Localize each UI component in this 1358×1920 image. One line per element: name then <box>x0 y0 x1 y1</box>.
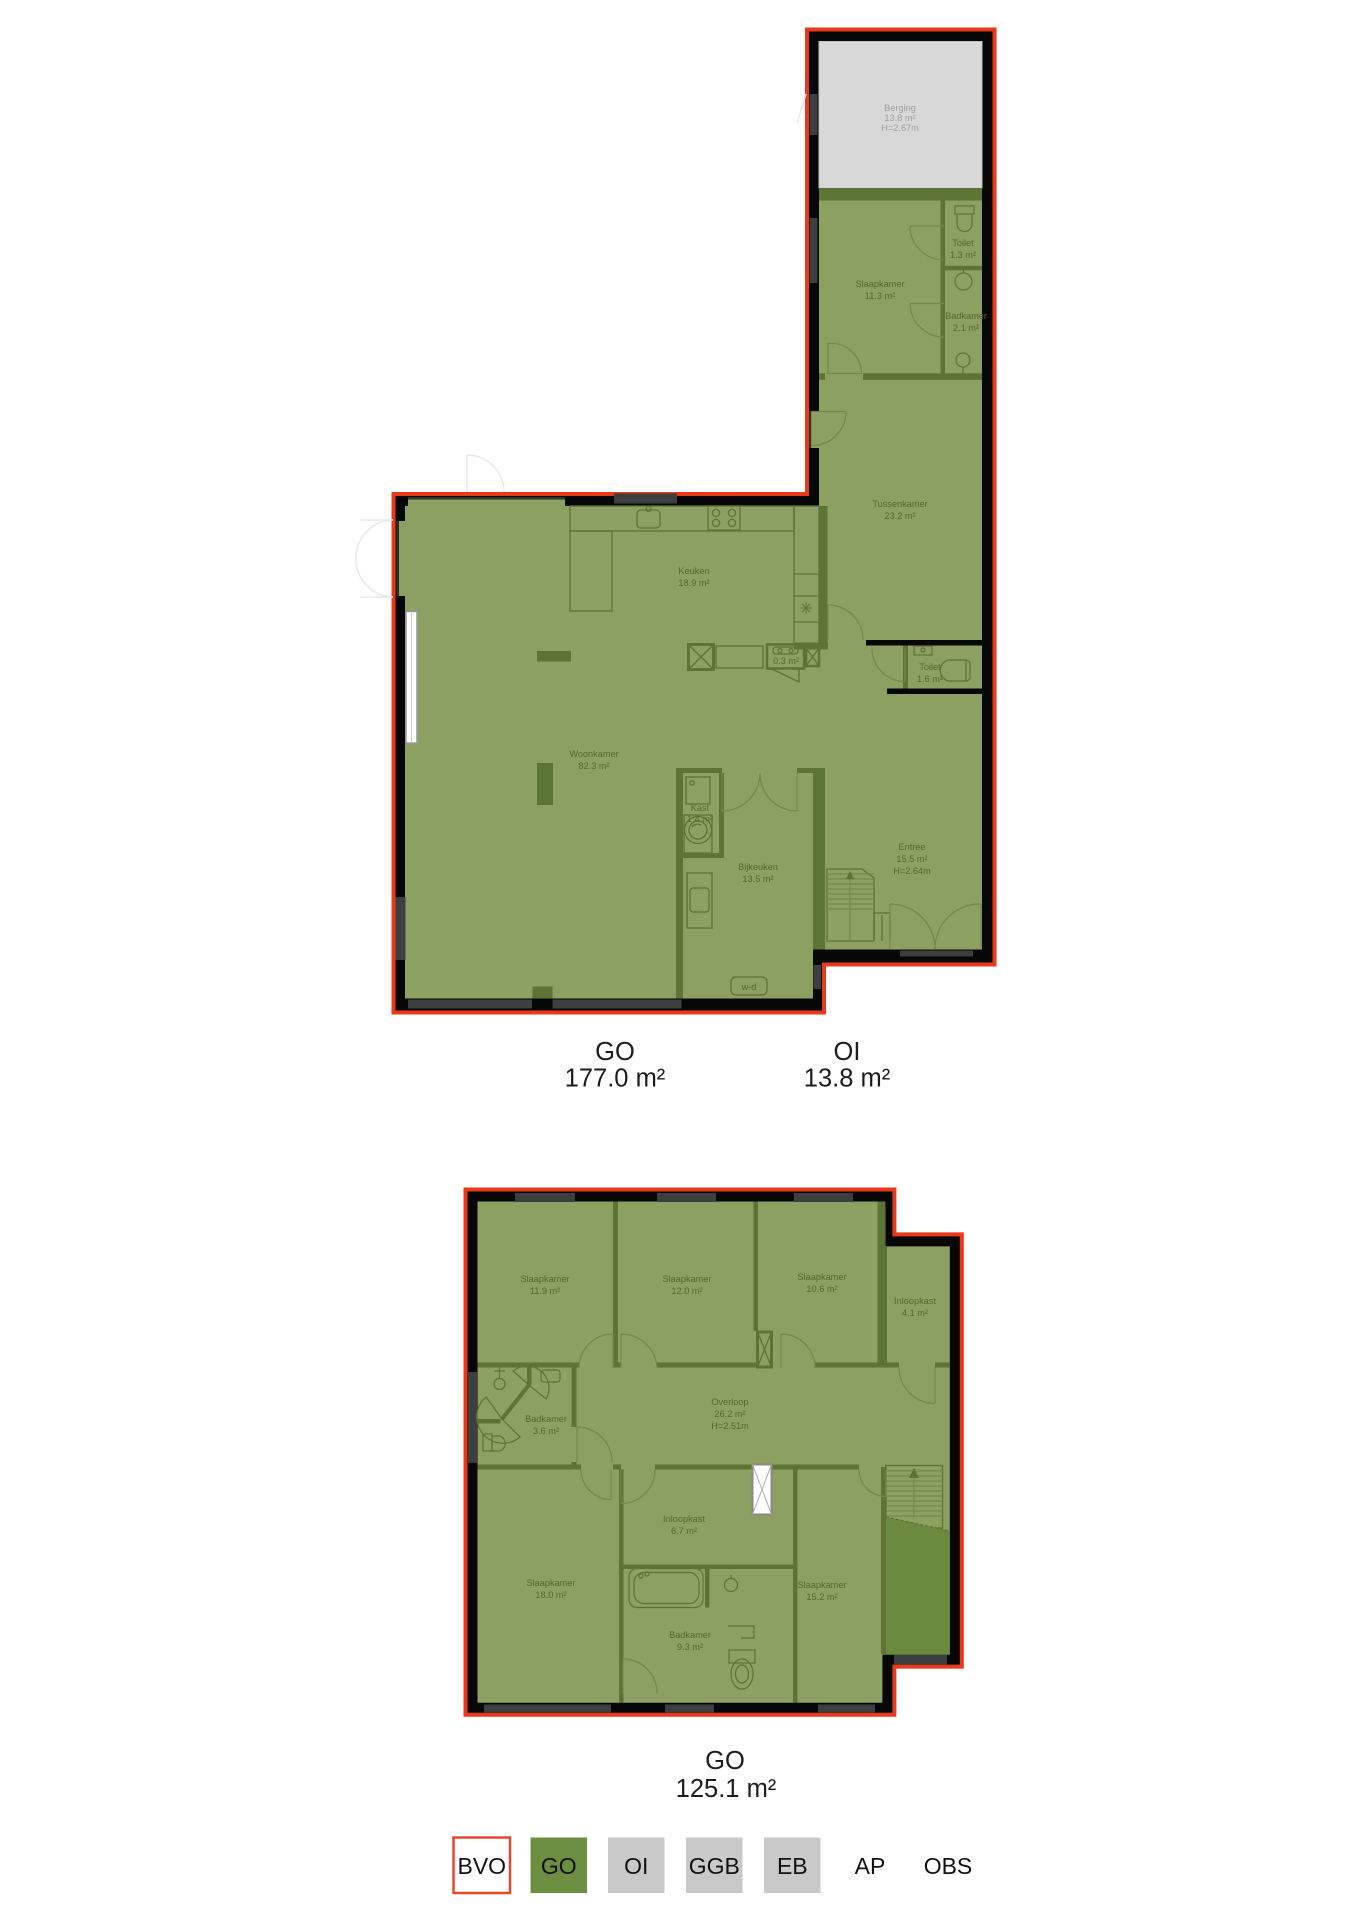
svg-text:Inloopkast: Inloopkast <box>663 1514 705 1524</box>
svg-text:3.6 m²: 3.6 m² <box>533 1426 559 1436</box>
svg-text:18.0 m²: 18.0 m² <box>535 1590 566 1600</box>
svg-text:Slaapkamer: Slaapkamer <box>797 1580 846 1590</box>
svg-text:1.6 m²: 1.6 m² <box>917 674 943 684</box>
svg-text:18.9 m²: 18.9 m² <box>678 578 709 588</box>
svg-text:6.7 m²: 6.7 m² <box>671 1526 697 1536</box>
svg-text:1.3 m²: 1.3 m² <box>950 250 976 260</box>
svg-text:OBS: OBS <box>924 1853 973 1879</box>
svg-text:OI: OI <box>624 1853 648 1879</box>
svg-text:H=2.67m: H=2.67m <box>881 123 919 133</box>
svg-text:11.3 m²: 11.3 m² <box>865 291 895 301</box>
svg-text:Tussenkamer: Tussenkamer <box>872 499 927 509</box>
svg-text:Woonkamer: Woonkamer <box>569 749 618 759</box>
svg-text:BVO: BVO <box>458 1853 507 1879</box>
svg-text:1.4 m²: 1.4 m² <box>687 814 713 824</box>
svg-text:Berging: Berging <box>884 103 916 113</box>
svg-text:Badkamer: Badkamer <box>525 1414 567 1424</box>
svg-text:GO: GO <box>705 1747 745 1775</box>
svg-text:125.1 m²: 125.1 m² <box>676 1775 777 1803</box>
svg-text:Kast: Kast <box>691 803 710 813</box>
svg-text:177.0 m²: 177.0 m² <box>565 1065 666 1093</box>
svg-text:Toilet: Toilet <box>919 662 941 672</box>
svg-text:Slaapkamer: Slaapkamer <box>662 1274 711 1284</box>
svg-text:GO: GO <box>595 1038 635 1066</box>
svg-text:H=2.64m: H=2.64m <box>893 866 931 876</box>
svg-text:Toilet: Toilet <box>952 238 974 248</box>
svg-text:OI: OI <box>834 1038 861 1066</box>
svg-text:Slaapkamer: Slaapkamer <box>520 1274 569 1284</box>
svg-text:EB: EB <box>777 1853 808 1879</box>
svg-text:GO: GO <box>541 1853 577 1879</box>
svg-text:Keuken: Keuken <box>678 566 709 576</box>
svg-text:GGB: GGB <box>689 1853 740 1879</box>
svg-text:Badkamer: Badkamer <box>669 1630 711 1640</box>
svg-text:2.1 m²: 2.1 m² <box>953 323 979 333</box>
svg-text:13.5 m²: 13.5 m² <box>742 874 773 884</box>
svg-text:Inloopkast: Inloopkast <box>894 1296 936 1306</box>
svg-text:w-d: w-d <box>741 982 757 992</box>
svg-text:23.2 m²: 23.2 m² <box>884 511 915 521</box>
svg-text:Slaapkamer: Slaapkamer <box>526 1578 575 1588</box>
svg-text:10.6 m²: 10.6 m² <box>806 1284 837 1294</box>
svg-text:Slaapkamer: Slaapkamer <box>797 1272 846 1282</box>
svg-text:H=2.51m: H=2.51m <box>711 1421 749 1431</box>
svg-text:Entree: Entree <box>898 842 925 852</box>
svg-text:12.0 m²: 12.0 m² <box>671 1286 702 1296</box>
svg-text:Overloop: Overloop <box>711 1397 748 1407</box>
svg-text:15.2 m²: 15.2 m² <box>806 1592 837 1602</box>
svg-text:9.3 m²: 9.3 m² <box>677 1642 703 1652</box>
svg-text:26.2 m²: 26.2 m² <box>714 1409 745 1419</box>
svg-text:0.3 m²: 0.3 m² <box>773 656 799 666</box>
svg-text:Badkamer: Badkamer <box>945 311 987 321</box>
svg-text:4.1 m²: 4.1 m² <box>902 1308 928 1318</box>
svg-text:Bijkeuken: Bijkeuken <box>738 862 778 872</box>
svg-text:15.5 m²: 15.5 m² <box>896 854 927 864</box>
svg-text:13.8 m²: 13.8 m² <box>884 113 915 123</box>
svg-text:AP: AP <box>855 1853 886 1879</box>
svg-text:82.3 m²: 82.3 m² <box>578 761 609 771</box>
svg-text:13.8 m²: 13.8 m² <box>804 1065 890 1093</box>
svg-text:11.9 m²: 11.9 m² <box>530 1286 560 1296</box>
svg-text:Slaapkamer: Slaapkamer <box>855 279 904 289</box>
